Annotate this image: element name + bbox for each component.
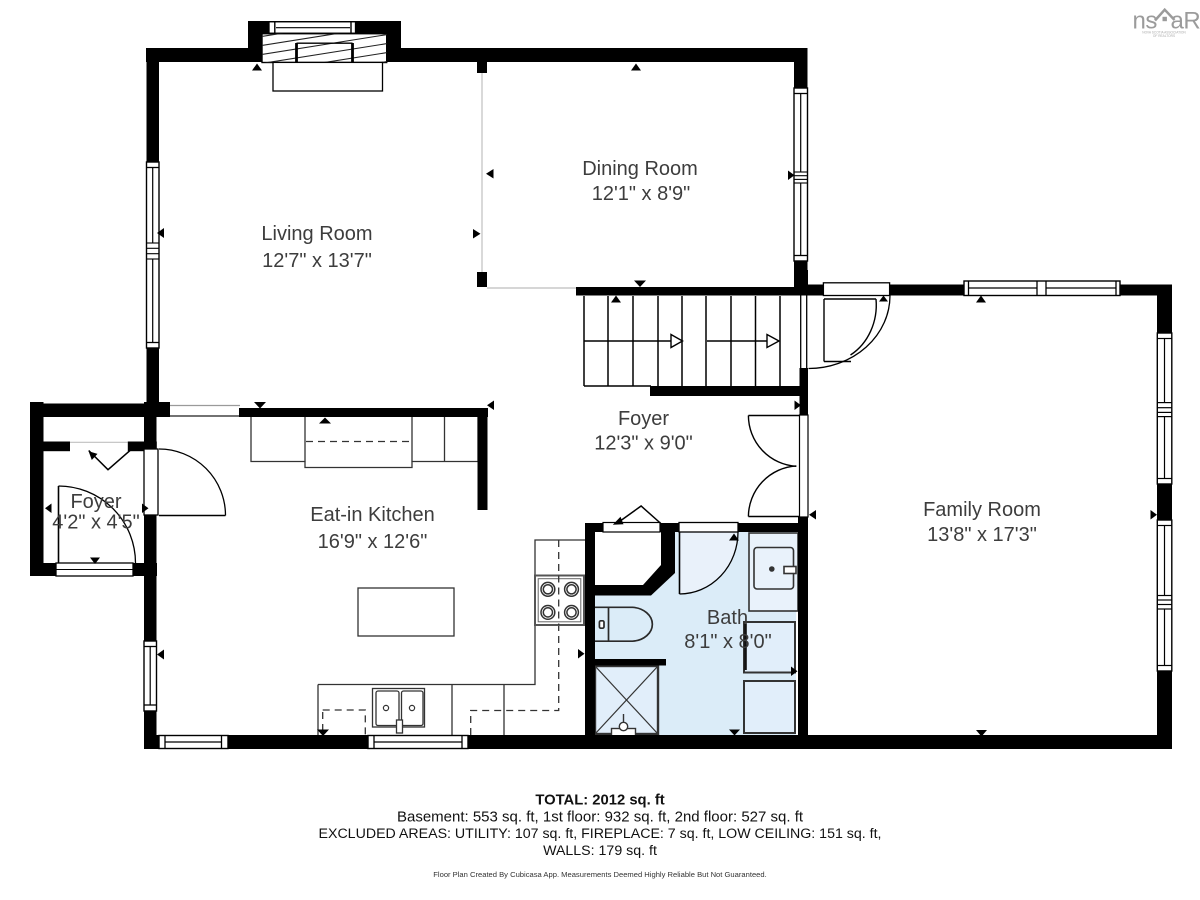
svg-text:Foyer: Foyer bbox=[618, 408, 669, 430]
svg-text:8'1" x 8'0": 8'1" x 8'0" bbox=[684, 631, 771, 653]
svg-text:OF REALTORS: OF REALTORS bbox=[1153, 34, 1175, 38]
svg-text:Floor Plan Created By Cubicasa: Floor Plan Created By Cubicasa App. Meas… bbox=[433, 870, 766, 879]
svg-text:Bath: Bath bbox=[707, 607, 748, 629]
svg-text:4'2" x 4'5": 4'2" x 4'5" bbox=[52, 512, 139, 534]
svg-text:EXCLUDED AREAS: UTILITY: 107 s: EXCLUDED AREAS: UTILITY: 107 sq. ft, FIR… bbox=[319, 826, 882, 842]
svg-text:16'9" x 12'6": 16'9" x 12'6" bbox=[318, 531, 428, 553]
svg-text:Dining Room: Dining Room bbox=[582, 158, 698, 180]
svg-text:Foyer: Foyer bbox=[70, 491, 121, 513]
svg-text:12'1" x 8'9": 12'1" x 8'9" bbox=[592, 183, 691, 205]
svg-text:12'7" x 13'7": 12'7" x 13'7" bbox=[262, 250, 372, 272]
svg-text:WALLS: 179 sq. ft: WALLS: 179 sq. ft bbox=[543, 843, 657, 859]
svg-text:Eat-in Kitchen: Eat-in Kitchen bbox=[310, 504, 435, 526]
svg-text:12'3" x 9'0": 12'3" x 9'0" bbox=[594, 433, 693, 455]
svg-text:Living Room: Living Room bbox=[261, 223, 372, 245]
svg-text:13'8" x 17'3": 13'8" x 17'3" bbox=[927, 524, 1037, 546]
svg-text:TOTAL: 2012 sq. ft: TOTAL: 2012 sq. ft bbox=[535, 793, 664, 809]
svg-text:Family Room: Family Room bbox=[923, 499, 1041, 521]
svg-text:Basement: 553 sq. ft, 1st floo: Basement: 553 sq. ft, 1st floor: 932 sq.… bbox=[397, 809, 804, 826]
